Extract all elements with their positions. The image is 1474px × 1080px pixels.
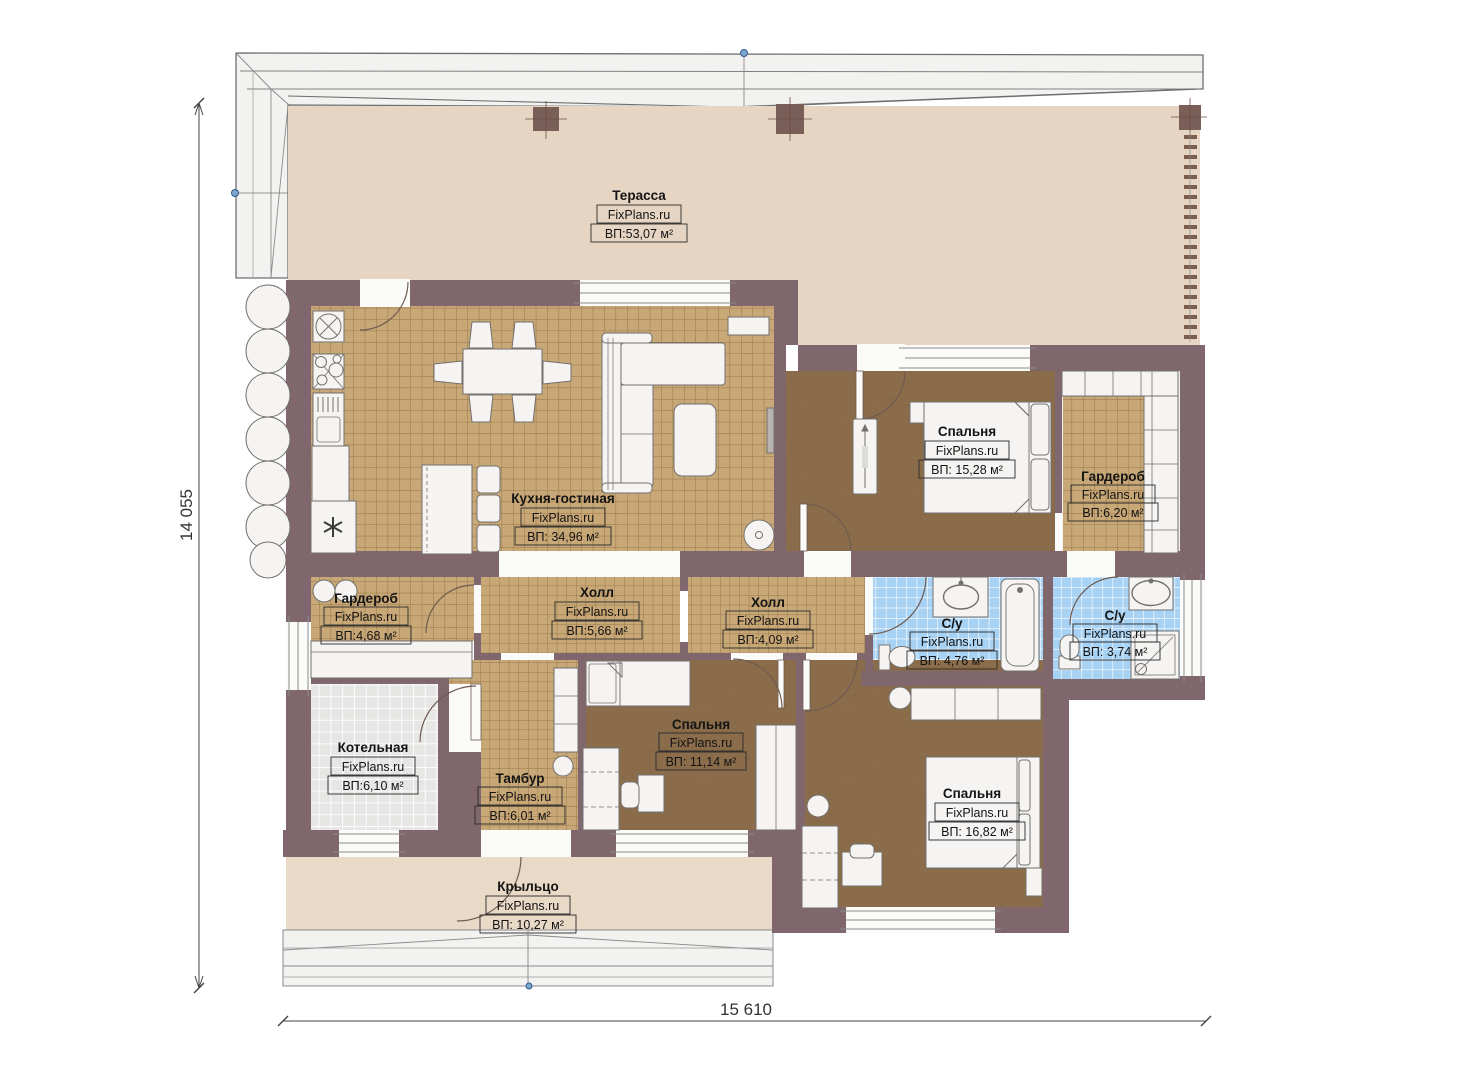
svg-text:FixPlans.ru: FixPlans.ru	[936, 444, 999, 458]
svg-text:FixPlans.ru: FixPlans.ru	[342, 760, 405, 774]
svg-text:Спальня: Спальня	[938, 424, 996, 439]
svg-text:Котельная: Котельная	[338, 740, 409, 755]
svg-text:FixPlans.ru: FixPlans.ru	[335, 610, 398, 624]
svg-text:ВП:53,07 м²: ВП:53,07 м²	[605, 227, 673, 241]
svg-text:FixPlans.ru: FixPlans.ru	[737, 614, 800, 628]
svg-text:15 610: 15 610	[720, 1000, 772, 1019]
svg-text:Терасса: Терасса	[612, 188, 666, 203]
svg-text:ВП: 3,74 м²: ВП: 3,74 м²	[1083, 645, 1148, 659]
svg-text:Гардероб: Гардероб	[1081, 469, 1145, 484]
svg-text:ВП: 16,82 м²: ВП: 16,82 м²	[941, 825, 1013, 839]
svg-text:Холл: Холл	[751, 595, 785, 610]
svg-text:С/у: С/у	[1104, 608, 1126, 623]
svg-text:FixPlans.ru: FixPlans.ru	[608, 208, 671, 222]
svg-text:ВП:5,66 м²: ВП:5,66 м²	[566, 624, 627, 638]
svg-text:ВП: 15,28 м²: ВП: 15,28 м²	[931, 463, 1003, 477]
svg-text:Спальня: Спальня	[943, 786, 1001, 801]
svg-text:FixPlans.ru: FixPlans.ru	[1084, 627, 1147, 641]
svg-text:ВП: 11,14 м²: ВП: 11,14 м²	[666, 755, 737, 769]
svg-text:Гардероб: Гардероб	[334, 591, 398, 606]
svg-text:ВП: 10,27 м²: ВП: 10,27 м²	[492, 918, 564, 932]
svg-text:ВП:4,68 м²: ВП:4,68 м²	[335, 629, 396, 643]
svg-text:ВП: 4,76 м²: ВП: 4,76 м²	[920, 654, 985, 668]
svg-text:Кухня-гостиная: Кухня-гостиная	[511, 491, 614, 506]
svg-text:14 055: 14 055	[177, 489, 196, 541]
svg-text:FixPlans.ru: FixPlans.ru	[921, 635, 984, 649]
svg-text:ВП:6,01 м²: ВП:6,01 м²	[489, 809, 550, 823]
svg-text:Крыльцо: Крыльцо	[497, 879, 558, 894]
svg-text:ВП:6,20 м²: ВП:6,20 м²	[1082, 506, 1143, 520]
svg-text:FixPlans.ru: FixPlans.ru	[532, 511, 595, 525]
svg-text:Спальня: Спальня	[672, 717, 730, 732]
svg-text:FixPlans.ru: FixPlans.ru	[1082, 488, 1145, 502]
svg-text:ВП:6,10 м²: ВП:6,10 м²	[342, 779, 403, 793]
svg-text:FixPlans.ru: FixPlans.ru	[670, 736, 733, 750]
svg-text:FixPlans.ru: FixPlans.ru	[946, 806, 1009, 820]
svg-text:FixPlans.ru: FixPlans.ru	[566, 605, 629, 619]
svg-text:ВП:4,09 м²: ВП:4,09 м²	[737, 633, 798, 647]
svg-text:ВП: 34,96 м²: ВП: 34,96 м²	[527, 530, 599, 544]
svg-text:Холл: Холл	[580, 585, 614, 600]
svg-text:FixPlans.ru: FixPlans.ru	[489, 790, 552, 804]
svg-text:FixPlans.ru: FixPlans.ru	[497, 899, 560, 913]
svg-text:С/у: С/у	[941, 616, 963, 631]
svg-text:Тамбур: Тамбур	[496, 771, 545, 786]
